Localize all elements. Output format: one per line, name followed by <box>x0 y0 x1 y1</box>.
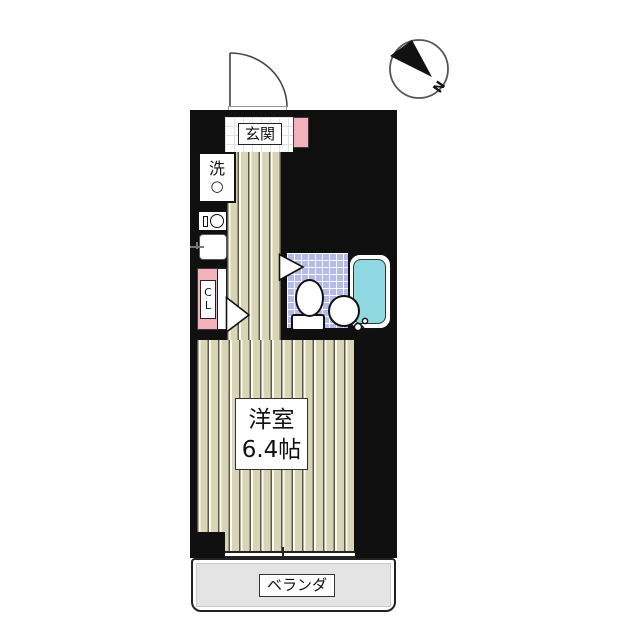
laundry-space: 洗 ○ <box>198 152 236 203</box>
compass-icon: N <box>386 38 452 102</box>
laundry-label: 洗 <box>209 159 225 178</box>
shoe-cabinet <box>293 117 309 148</box>
floor-plan: N 玄関 洗 ○ C L <box>0 0 640 640</box>
washbasin-icon <box>328 295 360 327</box>
window <box>225 551 355 558</box>
room-size: 6.4帖 <box>236 435 307 465</box>
faucet-handle-icon <box>196 242 198 249</box>
genkan-label: 玄関 <box>238 123 282 145</box>
veranda-label: ベランダ <box>259 574 335 597</box>
entry-door-swing-icon <box>225 43 295 109</box>
bathroom-door-icon <box>278 253 305 282</box>
veranda: ベランダ <box>191 558 396 612</box>
stove-burner-icon <box>198 211 227 231</box>
room-door-icon <box>225 296 251 334</box>
toilet-icon <box>295 279 324 317</box>
closet-label-line2: L <box>201 299 215 312</box>
stove-bar-icon <box>203 216 208 227</box>
stove-ring-icon <box>210 214 224 228</box>
room-name: 洋室 <box>236 405 307 435</box>
plan-walls: 玄関 洗 ○ C L <box>190 110 397 558</box>
room-label: 洋室 6.4帖 <box>235 398 308 470</box>
laundry-symbol: ○ <box>200 178 234 194</box>
closet-label-line1: C <box>201 286 215 299</box>
wall-notch <box>190 532 225 558</box>
closet-label: C L <box>200 280 216 319</box>
